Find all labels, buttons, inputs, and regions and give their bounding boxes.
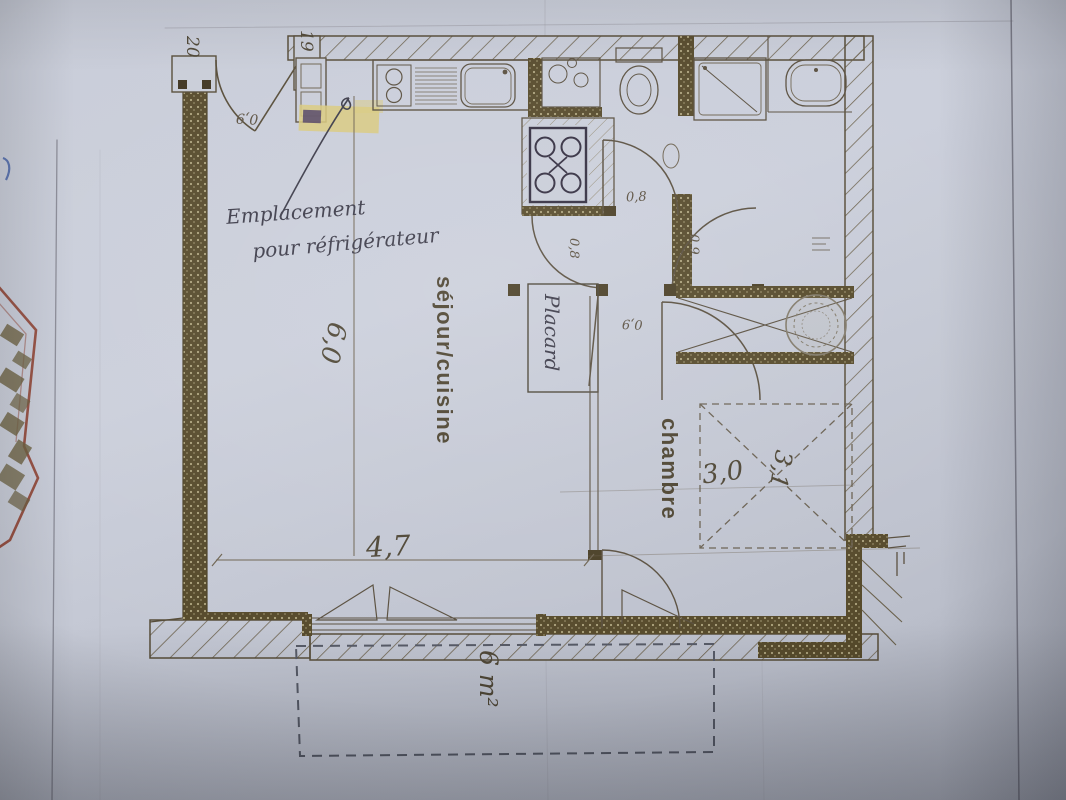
balcony [296,644,714,756]
wall-marker-19: 19 [296,30,316,52]
two-burner-hob-icon [377,65,411,106]
living-window [302,585,546,636]
circular-stamp-icon [786,295,846,355]
outer-walls [150,36,888,660]
floor-plan-drawing [0,0,1066,800]
living-width-dimension: 4,7 [365,529,411,564]
kitchen-counter [296,58,530,133]
kitchen-sink-icon [461,64,515,107]
entry-door-dimension: 0,9 [236,109,259,126]
shower-icon [694,58,766,120]
washbasin-icon [786,60,846,106]
living-door-dimension: 0,8 [566,238,581,259]
wc-door-dimension: 0,8 [626,190,647,206]
bedroom-door-dimension: 0,9 [622,316,643,332]
room-label-bedroom: chambre [656,418,682,520]
placard-closet [528,284,854,560]
room-label-living-kitchen: séjour/cuisine [431,276,457,445]
door-arc-icon [662,302,760,400]
blue-pen-mark [3,158,9,180]
adjacent-plan-fragment [0,286,38,548]
drainboard-icon [415,68,457,104]
floor-plan-photo: 20 19 0,9 Emplacement pour réfrigérateur… [0,0,1066,800]
hall-door-dimension: 0,9 [686,234,701,255]
bedroom-width-dimension: 3,0 [700,456,745,491]
hand-basin-icon [542,58,600,107]
hob-block [522,118,614,216]
sliding-window-icon [317,585,457,620]
balcony-area-label: 6 m² [474,650,503,708]
wall-marker-20: 20 [182,36,202,58]
closet-note: Placard [540,294,564,371]
bedroom-area [560,404,855,628]
